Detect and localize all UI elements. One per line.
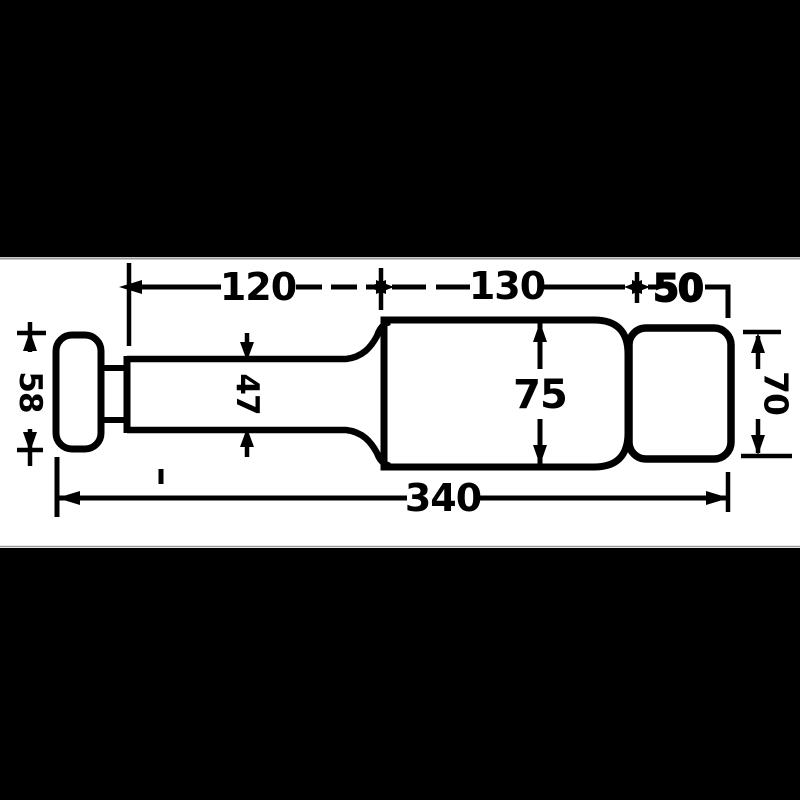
- letterbox-bar-top: [0, 0, 800, 257]
- part-end-cap-outline: [629, 328, 731, 459]
- dim-47-label: 47: [229, 373, 265, 414]
- dim-50-label: 50: [653, 267, 703, 310]
- dim-58-label: 58: [12, 371, 48, 412]
- dim-70-label: 70: [757, 371, 796, 415]
- letterbox-bar-bottom: [0, 548, 800, 800]
- scanned-technical-drawing: 120 130 50 75 47 58 70 340: [0, 0, 800, 800]
- dim-120-label: 120: [220, 265, 296, 309]
- dim-130-label: 130: [469, 264, 545, 308]
- dimension-drawing-canvas: 120 130 50 75 47 58 70 340: [0, 0, 800, 800]
- dim-75-label: 75: [513, 372, 567, 418]
- part-body-outline: [384, 320, 628, 467]
- part-knob-outline: [56, 335, 101, 449]
- dim-340-label: 340: [405, 476, 481, 520]
